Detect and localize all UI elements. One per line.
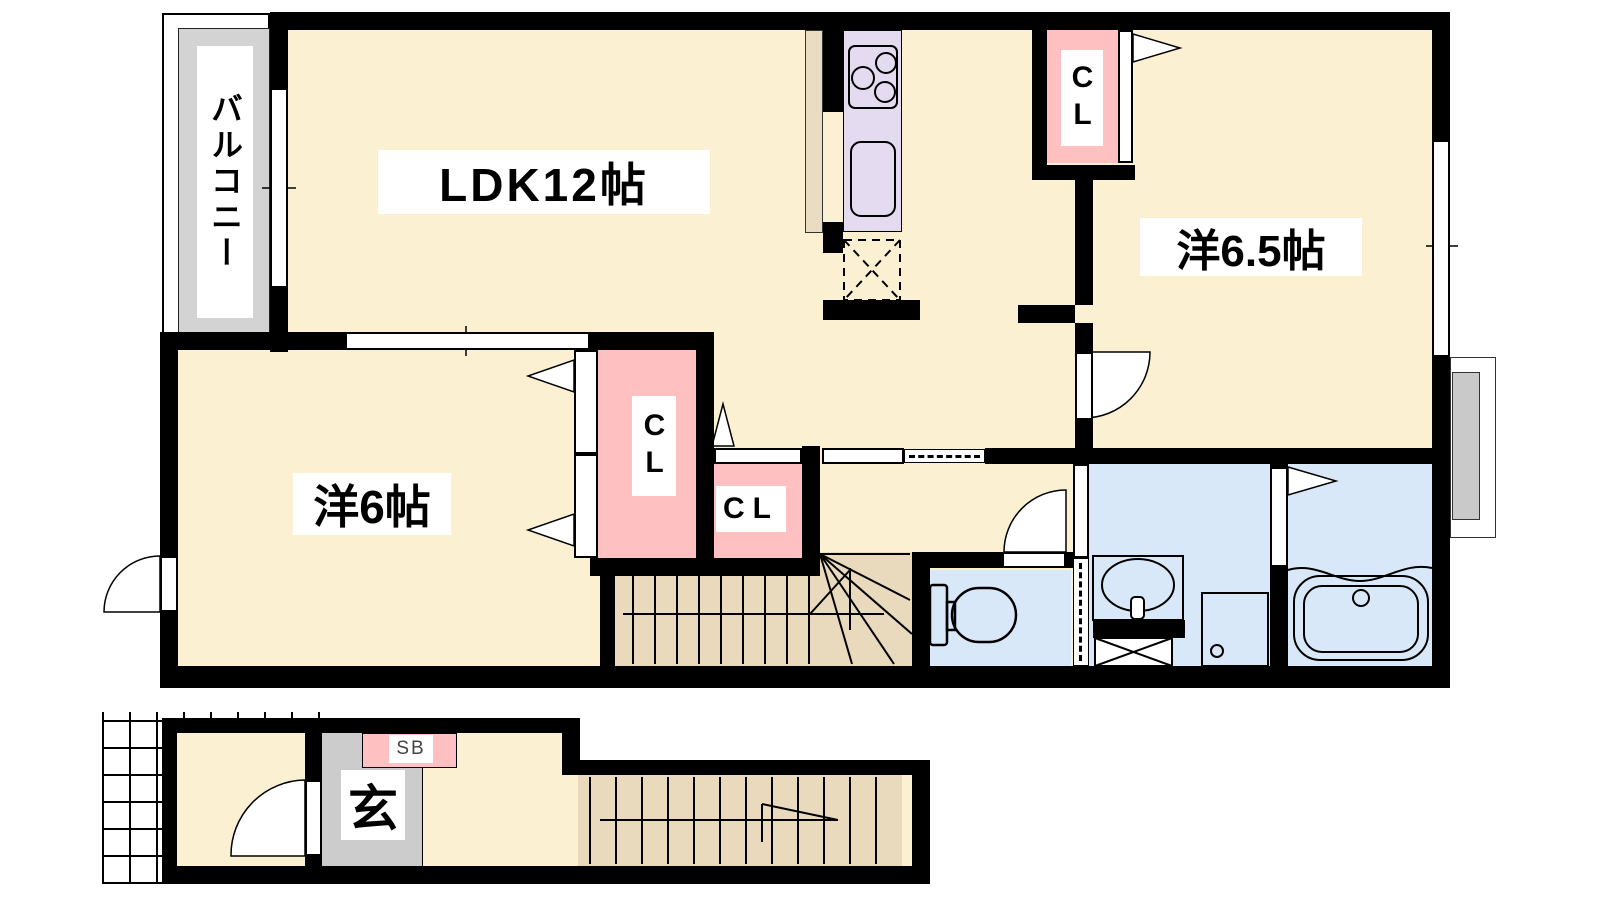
toilet-bowl-icon [952,588,1016,642]
folding-door-icon-closet-bedroom2-bottom [528,514,574,546]
wall [912,552,1002,568]
wall [823,30,843,112]
wall [305,733,322,780]
door-arc-bedroom2-ext [104,556,160,612]
entrance-door [305,780,322,856]
shoebox-label: SB [389,735,433,763]
burner-icon [876,53,896,73]
bathtub-drain-icon [1353,590,1369,606]
refrigerator-x [844,240,900,300]
genkan-label: 玄 [341,770,405,840]
window-bedroom2 [345,332,590,350]
wall [270,12,1450,30]
balcony-label-text: バルコニー [202,92,248,272]
wall [823,222,843,253]
folding-door-icon-closet-hall [712,404,734,446]
folding-door-icon-bath [1288,467,1336,495]
closet-door-bedroom2-bottom [574,454,598,558]
closet-door-bedroom1 [1118,30,1133,163]
bedroom2-label-text: 洋6帖 [313,471,431,537]
toilet-tank-icon [930,585,947,645]
sliding-door-washroom-track [1073,558,1089,666]
wall [802,446,820,576]
sliding-door-ldk-hall [822,448,904,464]
door-arc-entrance [231,780,305,856]
burner-icon [875,82,895,102]
refrigerator-space [844,240,900,300]
stair-treads-1f [590,777,876,864]
wall [162,718,580,733]
closet-label-bedroom1: CL [1061,50,1103,146]
wall [305,856,322,866]
wall [1032,12,1047,165]
wall [600,558,615,666]
sliding-door-washroom [1073,464,1089,558]
wall [1432,12,1450,140]
closet-door-hall [714,448,802,464]
door-arc-bedroom1 [1084,352,1150,418]
wall [1075,180,1093,305]
wall [985,448,1450,464]
wall [1018,305,1075,323]
folding-door-icon-closet-bedroom1 [1133,34,1180,62]
wall [162,718,177,884]
closet-label-text: CL [637,409,671,483]
wall [270,12,288,90]
closet-door-bedroom2-top [574,350,598,454]
bathtub-inner-icon [1304,586,1418,652]
refrigerator-x [844,240,900,300]
kitchen-sink-icon [851,142,895,216]
sliding-door-track [904,449,985,463]
closet-label-text: CL [1065,61,1099,135]
wall [1432,357,1450,688]
drain-icon [1211,645,1223,657]
closet-label-hall: CL [716,486,786,532]
folding-door-icon-closet-bedroom2-top [528,360,574,392]
wall [562,760,930,775]
closet-label-bedroom2: CL [632,396,676,496]
genkan-label-text: 玄 [348,769,398,841]
room-label-bedroom1: 洋6.5帖 [1140,218,1362,276]
floor-plan: LDK12帖 洋6.5帖 洋6帖 CL CL CL バルコニー 玄 SB [0,0,1600,900]
wall [912,552,930,666]
wall [160,332,178,556]
window-balcony [270,88,288,288]
wall [160,612,178,688]
wall [162,866,930,884]
door-arc-toilet [1004,490,1066,552]
window-bedroom1 [1432,140,1450,357]
wall [1075,420,1093,448]
under-basin-wall [1093,620,1185,638]
shoebox-label-text: SB [396,738,425,760]
wall [590,558,820,576]
wall [1066,552,1073,568]
ldk-label-text: LDK12帖 [439,149,649,215]
faucet-icon [1131,597,1144,619]
door-toilet [1002,552,1066,568]
wall [160,666,1450,688]
wall [696,332,714,558]
bedroom1-label-text: 洋6.5帖 [1176,215,1325,279]
wall [1032,165,1135,180]
door-bedroom1 [1075,352,1093,420]
burner-icon [852,67,874,89]
room-label-bedroom2: 洋6帖 [293,473,451,535]
door-bedroom2-ext [160,556,178,612]
wall [160,332,345,350]
balcony-label: バルコニー [197,46,253,318]
door-bath [1270,467,1288,567]
wall [823,300,920,320]
room-label-ldk: LDK12帖 [378,150,710,214]
closet-label-text: CL [723,492,779,526]
wall [1075,323,1093,352]
